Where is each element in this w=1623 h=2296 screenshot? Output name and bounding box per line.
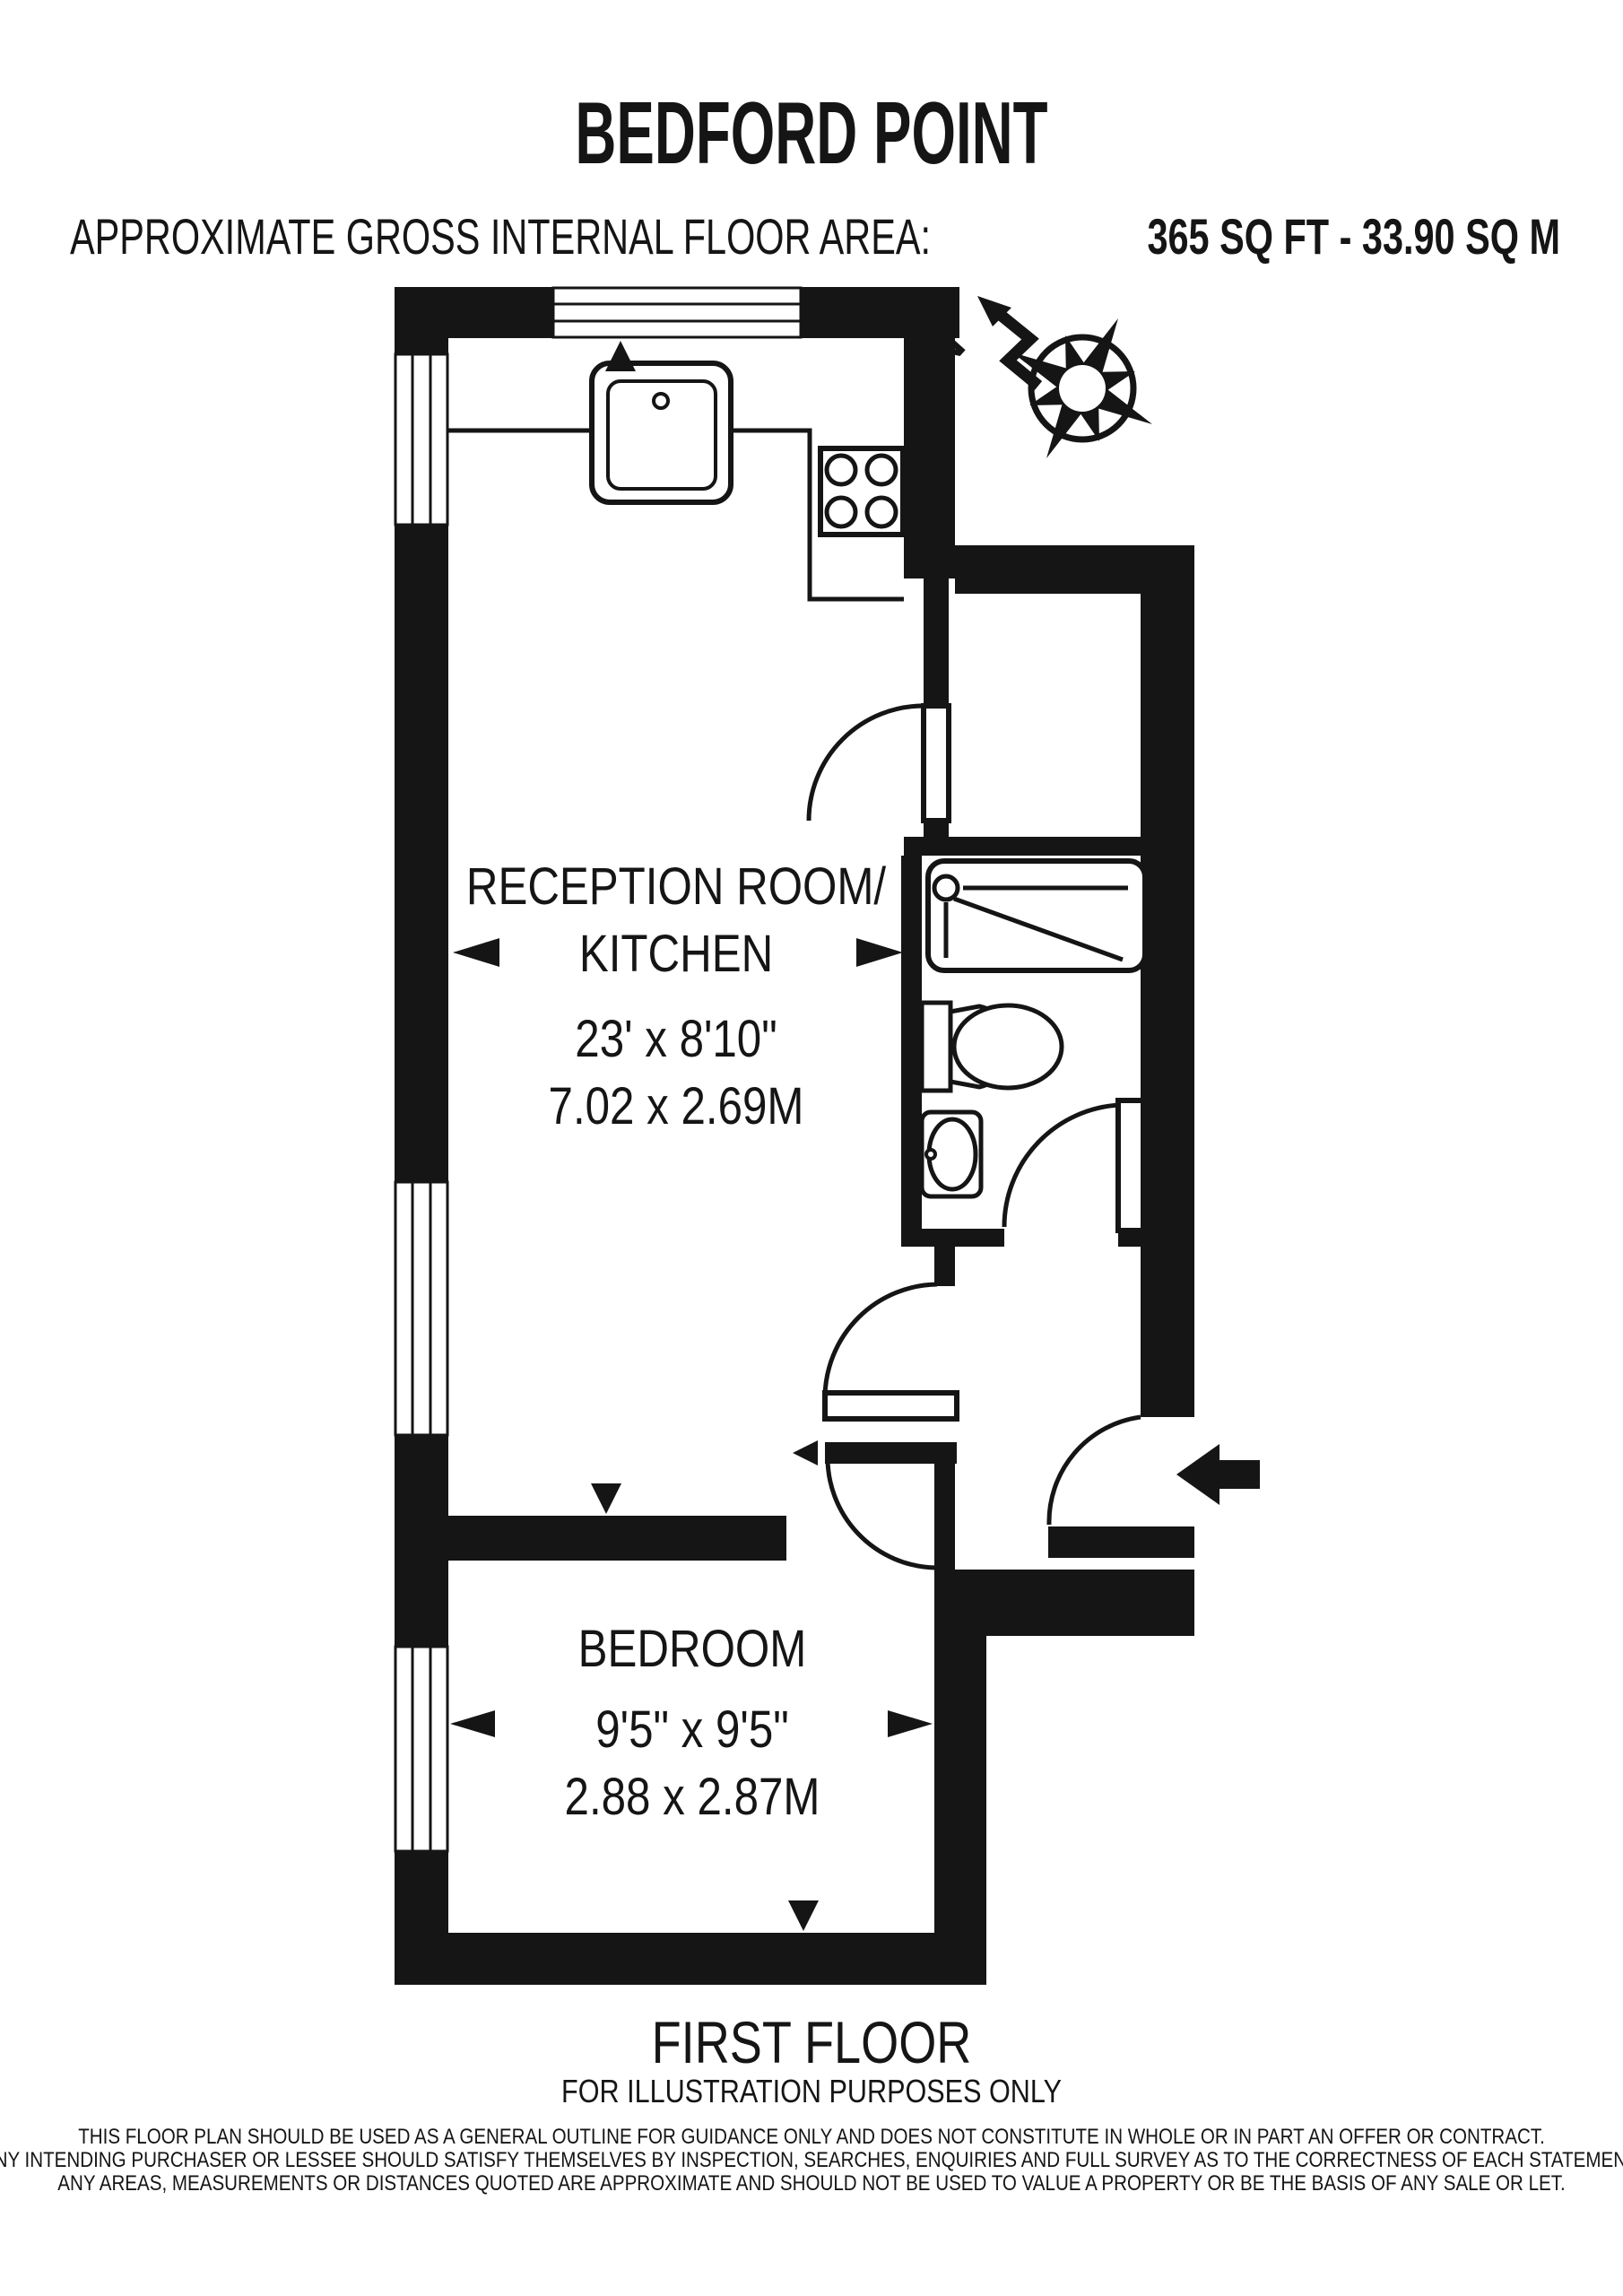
floorplan-page: BEDFORD POINT APPROXIMATE GROSS INTERNAL… xyxy=(0,0,1623,2296)
dimension-arrows xyxy=(450,341,933,1931)
wall-bedroom-right xyxy=(934,1636,986,1985)
wall-hall-bottom xyxy=(934,1570,1194,1636)
wall-bathroom-left xyxy=(901,856,922,1247)
entrance-arrow-icon xyxy=(1176,1444,1260,1505)
arrow-down-icon xyxy=(591,1483,621,1514)
arrow-right-icon xyxy=(888,1710,933,1737)
wall-bottom xyxy=(395,1933,986,1985)
walls xyxy=(395,287,1194,1985)
floor-label: FIRST FLOOR xyxy=(652,2009,972,2075)
door-kitchen-storeroom xyxy=(809,706,949,821)
wall-reception-jog xyxy=(825,1442,957,1464)
area-label: APPROXIMATE GROSS INTERNAL FLOOR AREA: xyxy=(70,209,931,265)
kitchen xyxy=(448,363,904,599)
window-left-3 xyxy=(395,1647,447,1851)
reception-size-imperial: 23' x 8'10" xyxy=(575,1010,777,1068)
kitchen-sink xyxy=(592,363,731,502)
windows xyxy=(395,288,801,1851)
bedroom-name: BEDROOM xyxy=(578,1620,807,1678)
disclaimer-line2: ANY INTENDING PURCHASER OR LESSEE SHOULD… xyxy=(0,2147,1623,2171)
floorplan-drawing: BEDFORD POINT APPROXIMATE GROSS INTERNAL… xyxy=(0,0,1623,2296)
wall-bathroom-top xyxy=(904,837,1141,856)
wall-corridor-stub xyxy=(934,1247,955,1286)
arrow-left-icon xyxy=(450,1710,495,1737)
basin xyxy=(922,1112,981,1196)
arrow-down-icon xyxy=(788,1900,819,1931)
window-left-1 xyxy=(395,354,447,525)
bedroom-size-imperial: 9'5" x 9'5" xyxy=(595,1700,788,1759)
arrow-right-icon xyxy=(856,938,903,967)
shower-tray xyxy=(928,861,1145,970)
kitchen-hob xyxy=(820,448,903,535)
bedroom-label-group: BEDROOM 9'5" x 9'5" 2.88 x 2.87M xyxy=(565,1620,820,1826)
reception-name-line1: RECEPTION ROOM/ xyxy=(466,857,886,916)
wall-right-upper xyxy=(1141,594,1194,1417)
disclaimer-line3: ANY AREAS, MEASUREMENTS OR DISTANCES QUO… xyxy=(57,2170,1566,2195)
door-entrance xyxy=(1049,1417,1141,1525)
north-arrow-zigzag-icon xyxy=(997,312,1038,386)
page-title-group: BEDFORD POINT xyxy=(575,83,1047,182)
wall-storeroom-top xyxy=(955,545,1194,594)
compass-core xyxy=(1059,365,1106,412)
arrow-left-small-icon xyxy=(793,1440,818,1465)
arrow-up-icon xyxy=(605,341,636,371)
illustration-note: FOR ILLUSTRATION PURPOSES ONLY xyxy=(561,2074,1062,2110)
door-bathroom xyxy=(1004,1100,1143,1231)
wall-corridor-lower xyxy=(934,1464,955,1571)
window-left-2 xyxy=(395,1182,447,1435)
door-bedroom xyxy=(828,1455,935,1568)
toilet xyxy=(922,1003,1062,1091)
page-title: BEDFORD POINT xyxy=(575,83,1047,182)
wall-entrance-stub xyxy=(1048,1526,1194,1558)
wall-divider-upper xyxy=(924,578,949,706)
wall-bathroom-bottom xyxy=(901,1229,1004,1247)
arrow-left-icon xyxy=(453,938,499,967)
reception-label-group: RECEPTION ROOM/ KITCHEN 23' x 8'10" 7.02… xyxy=(466,857,886,1135)
reception-size-metric: 7.02 x 2.69M xyxy=(549,1077,804,1135)
reception-name-line2: KITCHEN xyxy=(579,925,773,983)
bedroom-size-metric: 2.88 x 2.87M xyxy=(565,1768,820,1826)
door-reception xyxy=(825,1284,957,1419)
window-top xyxy=(553,288,801,337)
area-value: 365 SQ FT - 33.90 SQ M xyxy=(1147,209,1560,265)
disclaimer-line1: THIS FLOOR PLAN SHOULD BE USED AS A GENE… xyxy=(78,2124,1545,2148)
wall-bedroom-partition xyxy=(448,1516,786,1561)
